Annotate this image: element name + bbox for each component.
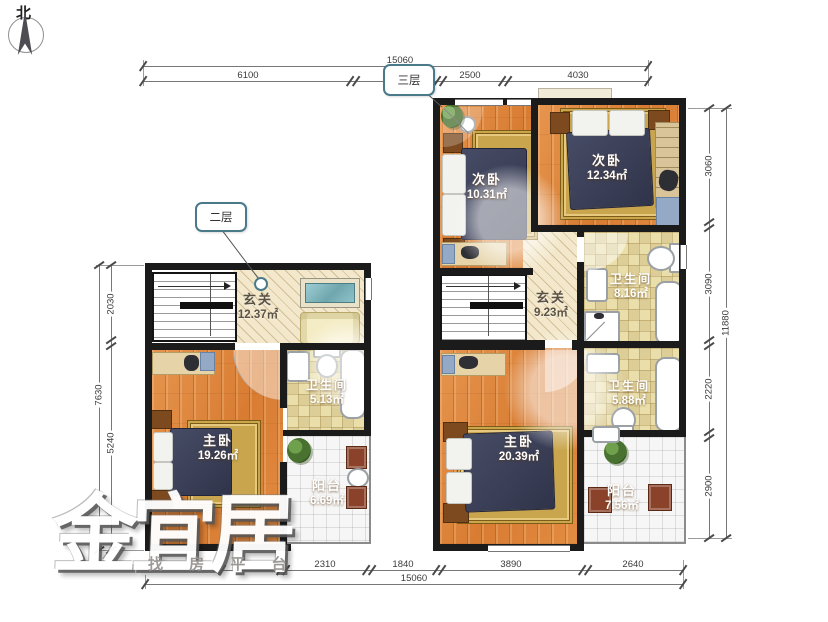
floor3-bath1-window — [680, 245, 687, 269]
room-name: 卫生间 — [597, 272, 665, 287]
floor3-wall-bedroom2-bottom — [533, 225, 686, 232]
floor3-wall-bath2-bottom-a — [577, 430, 592, 437]
callout-floor2-dot — [254, 277, 268, 291]
dim-left-seg2: 5240 — [106, 430, 117, 455]
dim-right-seg3: 2220 — [704, 376, 715, 401]
floor2-balcony-rail-bottom — [287, 542, 371, 544]
floor3-bath2-label: 卫生间 5.88㎡ — [595, 379, 663, 408]
bench-cushion — [442, 355, 455, 374]
room-name: 次卧 — [453, 172, 521, 188]
plant-icon — [604, 440, 627, 464]
room-name: 阳台 — [296, 478, 358, 494]
dim-left-total: 7630 — [94, 382, 105, 407]
compass-north-label: 北 — [16, 2, 31, 23]
floor2-wall-bath-left — [280, 350, 287, 408]
wardrobe-icon — [655, 122, 681, 208]
bench-bag — [459, 356, 478, 369]
callout-floor2: 二层 — [195, 202, 247, 232]
floor2-stair-arrow-icon — [224, 282, 231, 290]
callout-floor2-label: 二层 — [210, 209, 233, 225]
nightstand — [150, 410, 172, 429]
room-area: 20.39㎡ — [485, 450, 553, 464]
desk-icon — [656, 197, 681, 226]
dim-left-seg1: 2030 — [106, 291, 117, 316]
pillow — [572, 110, 608, 136]
floor3-bedroom1-window-2 — [507, 99, 531, 106]
dim-line-bottom-total — [145, 584, 683, 585]
room-area: 10.31㎡ — [453, 188, 521, 202]
toilet-icon — [316, 354, 338, 378]
floor3-master-window — [488, 545, 570, 552]
dim-right-seg4: 2900 — [704, 473, 715, 498]
floor3-balcony-rail-bottom — [584, 542, 684, 544]
floor2-entry-window — [365, 278, 372, 300]
floor3-bedroom1-window — [455, 99, 503, 106]
room-area: 12.37㎡ — [218, 308, 298, 322]
toilet-icon — [647, 246, 675, 271]
dim-right-total: 11880 — [721, 308, 732, 338]
floor2-balcony-label: 阳台 6.69㎡ — [296, 478, 358, 509]
dim-top-seg3: 4030 — [565, 70, 590, 81]
tv-screen — [305, 283, 355, 303]
dim-bottom-seg3: 3890 — [498, 559, 523, 570]
room-area: 5.88㎡ — [595, 394, 663, 408]
room-name: 阳台 — [592, 483, 652, 499]
dim-right-seg2: 3090 — [704, 271, 715, 296]
room-name: 主卧 — [178, 433, 258, 449]
floor2-balcony-rail-right — [369, 436, 371, 544]
floor3-balcony-label: 阳台 7.56㎡ — [592, 483, 652, 514]
dim-right-seg1: 3060 — [704, 153, 715, 178]
floor3-wall-bath1-left-a — [577, 232, 584, 237]
room-area: 7.56㎡ — [592, 499, 652, 513]
floor2-wall-mid-left — [145, 343, 235, 350]
room-name: 次卧 — [573, 153, 641, 169]
floor3-entry-label: 玄关 9.23㎡ — [517, 290, 585, 321]
floor2-bath-label: 卫生间 5.13㎡ — [294, 378, 360, 407]
pillow — [153, 462, 173, 490]
floor3-balcony-rail-right — [684, 437, 686, 544]
floor3-wall-bedroom-divider — [531, 105, 538, 232]
tv-icon — [300, 278, 360, 308]
room-name: 玄关 — [218, 292, 298, 308]
dim-top-seg2: 2500 — [457, 70, 482, 81]
balcony-door-leaf — [592, 426, 620, 443]
room-area: 19.26㎡ — [178, 449, 258, 463]
room-name: 卫生间 — [294, 378, 360, 393]
sink-icon — [586, 353, 620, 374]
floor3-master-label: 主卧 20.39㎡ — [485, 434, 553, 465]
floor3-bedroom1-label: 次卧 10.31㎡ — [453, 172, 521, 203]
plant-icon — [287, 438, 311, 463]
floor2-desk-monitor — [200, 352, 215, 371]
floor2-master-label: 主卧 19.26㎡ — [178, 433, 258, 464]
floor3-stair-arrow-line — [446, 286, 514, 287]
dim-bottom-seg4: 2640 — [620, 559, 645, 570]
room-area: 5.13㎡ — [294, 393, 360, 407]
callout-floor3: 三层 — [383, 64, 435, 96]
pillow — [446, 472, 472, 504]
floor2-stair-arrow-line — [158, 286, 224, 287]
pillow — [153, 432, 173, 462]
nightstand — [550, 112, 570, 134]
floor2-wall-mid-right — [280, 343, 371, 350]
floor3-bedroom2-label: 次卧 12.34㎡ — [573, 153, 641, 184]
floor2-wall-top — [145, 263, 371, 270]
floor3-wall-bedroom1-bottom — [433, 268, 533, 275]
bench-bag — [461, 246, 479, 259]
pillow — [609, 110, 645, 136]
extension-line — [96, 265, 144, 266]
callout-floor3-label: 三层 — [398, 72, 421, 88]
floor3-wall-left — [433, 98, 440, 551]
room-area: 12.34㎡ — [573, 169, 641, 183]
dim-bottom-seg2: 1840 — [390, 559, 415, 570]
floor2-wall-bath-bottom — [283, 430, 371, 436]
floor2-entry-label: 玄关 12.37㎡ — [218, 292, 298, 323]
floor3-wall-bath2-bottom-b — [616, 430, 686, 437]
room-name: 主卧 — [485, 434, 553, 450]
room-area: 6.69㎡ — [296, 494, 358, 508]
room-name: 卫生间 — [595, 379, 663, 394]
floor2-desk-chair-icon — [184, 355, 199, 371]
balcony-chair — [346, 446, 367, 469]
shower-head — [594, 313, 604, 319]
floor3-wall-mid — [433, 340, 545, 350]
floor3-entry-floor — [523, 232, 577, 340]
room-area: 9.23㎡ — [517, 306, 585, 320]
watermark-tagline: 找 房 平 台 — [148, 553, 298, 574]
floor3-wall-master-right — [577, 348, 584, 544]
bench-cushion — [442, 244, 455, 264]
room-area: 8.16㎡ — [597, 287, 665, 301]
dim-bottom-total: 15060 — [399, 573, 429, 584]
dim-top-seg1: 6100 — [235, 70, 260, 81]
floor3-wall-bath1-bottom — [577, 341, 686, 348]
floor3-stair-landing — [470, 302, 523, 309]
pillow — [446, 438, 472, 470]
dim-bottom-seg1: 2310 — [312, 559, 337, 570]
floor3-stair-arrow-icon — [514, 282, 521, 290]
room-name: 玄关 — [517, 290, 585, 306]
floorplan-canvas: 北 15060 6100 2500 4030 三层 二层 — [0, 0, 828, 622]
sofa-icon — [300, 312, 360, 344]
floor3-bath1-label: 卫生间 8.16㎡ — [597, 272, 665, 301]
